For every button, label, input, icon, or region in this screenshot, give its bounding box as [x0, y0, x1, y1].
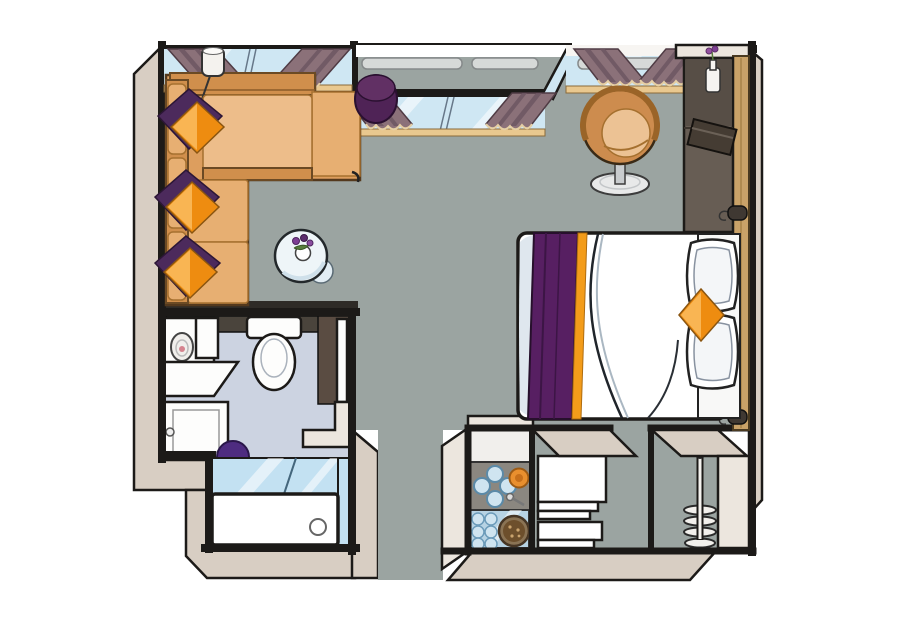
- sofa-right-arm: [312, 92, 360, 176]
- minibar-counter: [469, 462, 530, 550]
- flower-stem: [712, 52, 713, 60]
- washbasin-ledge: [196, 318, 218, 358]
- glass-1: [474, 478, 490, 494]
- orange-fruit-center: [515, 474, 523, 482]
- lamp-shade-top: [203, 48, 223, 55]
- glass-3: [487, 491, 503, 507]
- balcony-ottoman: [355, 75, 397, 123]
- sofa-chaise-cushion: [203, 95, 312, 176]
- hallway-floor: [378, 430, 443, 580]
- small-glass-4: [485, 526, 497, 538]
- sofa-chaise-edge: [203, 168, 312, 180]
- small-glass-2: [485, 513, 497, 525]
- vase-flower-2: [712, 46, 718, 52]
- plate-speckle-3: [510, 534, 513, 537]
- small-glass-3: [472, 526, 484, 538]
- balcony-railing-bar-1: [362, 58, 462, 69]
- flower-3: [307, 240, 313, 246]
- flower-2: [301, 235, 308, 242]
- balcony-deck-strip: [356, 45, 566, 57]
- luggage-stool-b-step: [538, 540, 594, 548]
- welcome-plate-center: [503, 520, 525, 542]
- flower-1: [293, 238, 300, 245]
- luggage-stool-b: [538, 522, 602, 540]
- glass-2: [487, 466, 503, 482]
- cabinet-knob: [166, 428, 174, 436]
- toilet-bowl: [253, 334, 295, 390]
- bathroom-door: [337, 319, 347, 402]
- plate-speckle-2: [516, 528, 519, 531]
- bed-runner: [528, 233, 578, 419]
- luggage-stool-step2: [538, 511, 590, 519]
- floor-plan-illustration: [0, 0, 900, 633]
- tub-drain: [310, 519, 326, 535]
- bed: [518, 233, 740, 419]
- handle-top: [728, 206, 747, 220]
- luggage-stool-step1: [538, 502, 598, 511]
- corridor-right-wall-face: [718, 456, 749, 548]
- luggage-stool-top: [538, 456, 606, 502]
- luggage-stools: [538, 456, 606, 548]
- balcony-railing-bar-2: [472, 58, 538, 69]
- balcony-ottoman-top: [357, 75, 395, 101]
- tub-chair: [583, 88, 657, 195]
- vase-neck: [710, 60, 716, 70]
- plate-speckle-4: [518, 535, 521, 538]
- vase-flower-1: [706, 48, 712, 54]
- washbasin-soap: [179, 346, 185, 352]
- vase-body: [706, 68, 720, 92]
- bathtub: [212, 458, 352, 545]
- plate-speckle-1: [508, 525, 511, 528]
- small-glass-1: [472, 513, 484, 525]
